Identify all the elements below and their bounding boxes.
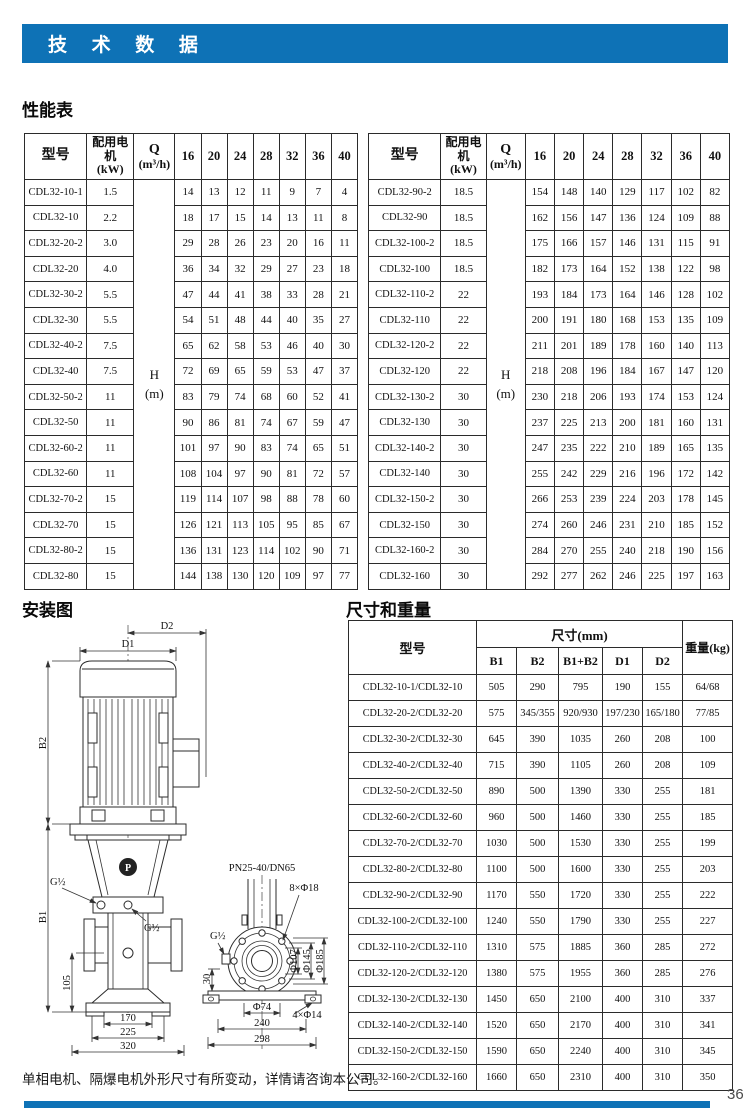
b1-cell: 1240: [477, 909, 517, 935]
motor-fan-cover: [80, 661, 176, 697]
d2-cell: 208: [643, 727, 683, 753]
head-value-cell: 216: [613, 461, 642, 487]
label-105: 105: [62, 975, 73, 991]
head-value-cell: 235: [555, 435, 584, 461]
head-value-cell: 29: [175, 231, 201, 257]
head-value-cell: 48: [227, 307, 253, 333]
perf-header-row: 型号 配用电机 (kW) Q (m³/h) 16 20 24 28 32 36 …: [25, 134, 358, 180]
head-unit-cell: H(m): [134, 180, 175, 590]
d2-cell: 310: [643, 987, 683, 1013]
head-value-cell: 113: [700, 333, 729, 359]
model-cell: CDL32-90-2/CDL32-90: [349, 883, 477, 909]
b1-cell: 1520: [477, 1013, 517, 1039]
perf-row: CDL32-140-230247235222210189165135: [369, 435, 730, 461]
dimensions-table: 型号 尺寸(mm) 重量(kg) B1 B2 B1+B2 D1 D2 CDL32…: [348, 620, 733, 1091]
b1b2-cell: 1105: [559, 753, 603, 779]
label-flange-spec: PN25-40/DN65: [229, 863, 296, 874]
motor-power-cell: 18.5: [441, 256, 486, 282]
head-value-cell: 224: [613, 487, 642, 513]
dimension-row: CDL32-150-2/CDL32-1501590650224040031034…: [349, 1039, 733, 1065]
model-cell: CDL32-120-2: [369, 333, 441, 359]
model-cell: CDL32-60-2: [25, 435, 87, 461]
perf-row: CDL32-100-218.517516615714613111591: [369, 231, 730, 257]
motor-power-cell: 4.0: [87, 256, 134, 282]
motor-power-cell: 30: [441, 487, 486, 513]
head-value-cell: 138: [642, 256, 671, 282]
b1-cell: 890: [477, 779, 517, 805]
d1-cell: 400: [603, 987, 643, 1013]
head-value-cell: 173: [584, 282, 613, 308]
motor-power-cell: 7.5: [87, 333, 134, 359]
head-value-cell: 74: [279, 435, 305, 461]
motor-power-cell: 30: [441, 538, 486, 564]
head-value-cell: 200: [613, 410, 642, 436]
motor-stool-flange: [70, 824, 186, 835]
b1-cell: 645: [477, 727, 517, 753]
head-value-cell: 131: [642, 231, 671, 257]
col-flow-16: 16: [525, 134, 554, 180]
head-value-cell: 193: [525, 282, 554, 308]
head-value-cell: 91: [700, 231, 729, 257]
head-value-cell: 231: [613, 512, 642, 538]
head-value-cell: 147: [584, 205, 613, 231]
head-value-cell: 260: [555, 512, 584, 538]
head-value-cell: 193: [613, 384, 642, 410]
head-value-cell: 97: [201, 435, 227, 461]
front-port: [123, 948, 133, 958]
perf-row: CDL32-15030274260246231210185152: [369, 512, 730, 538]
head-value-cell: 246: [584, 512, 613, 538]
weight-cell: 272: [683, 935, 733, 961]
model-cell: CDL32-140: [369, 461, 441, 487]
dimension-row: CDL32-120-2/CDL32-1201380575195536028527…: [349, 961, 733, 987]
head-value-cell: 98: [253, 487, 279, 513]
weight-cell: 185: [683, 805, 733, 831]
head-value-cell: 152: [700, 512, 729, 538]
head-value-cell: 270: [555, 538, 584, 564]
d2-cell: 255: [643, 779, 683, 805]
head-value-cell: 69: [201, 359, 227, 385]
d1-cell: 400: [603, 1065, 643, 1091]
col-size-group: 尺寸(mm): [477, 621, 683, 648]
head-value-cell: 154: [525, 180, 554, 206]
perf-row: CDL32-204.036343229272318: [25, 256, 358, 282]
head-value-cell: 146: [613, 231, 642, 257]
head-value-cell: 29: [253, 256, 279, 282]
head-value-cell: 85: [305, 512, 331, 538]
model-cell: CDL32-110: [369, 307, 441, 333]
suction-flange: [84, 919, 95, 971]
head-value-cell: 67: [331, 512, 357, 538]
d2-cell: 310: [643, 1065, 683, 1091]
motor-power-cell: 22: [441, 307, 486, 333]
head-value-cell: 135: [671, 307, 700, 333]
label-phi185: Φ185: [315, 949, 326, 972]
d1-cell: 400: [603, 1039, 643, 1065]
perf-row: CDL32-90-218.5H(m)15414814012911710282: [369, 180, 730, 206]
model-cell: CDL32-140-2: [369, 435, 441, 461]
head-value-cell: 37: [331, 359, 357, 385]
head-value-cell: 9: [279, 180, 305, 206]
head-value-cell: 284: [525, 538, 554, 564]
head-value-cell: 62: [201, 333, 227, 359]
model-cell: CDL32-30-2/CDL32-30: [349, 727, 477, 753]
weight-cell: 100: [683, 727, 733, 753]
motor-power-cell: 11: [87, 435, 134, 461]
label-298: 298: [254, 1034, 270, 1045]
dimension-row: CDL32-160-2/CDL32-1601660650231040031035…: [349, 1065, 733, 1091]
head-value-cell: 208: [555, 359, 584, 385]
head-value-cell: 196: [642, 461, 671, 487]
head-value-cell: 46: [279, 333, 305, 359]
perf-header-row: 型号 配用电机 (kW) Q (m³/h) 16 20 24 28 32 36 …: [369, 134, 730, 180]
label-d1: D1: [122, 639, 135, 650]
dimension-row: CDL32-130-2/CDL32-1301450650210040031033…: [349, 987, 733, 1013]
d1-cell: 330: [603, 805, 643, 831]
base-plate: [208, 991, 316, 1000]
head-value-cell: 102: [671, 180, 700, 206]
label-b1: B1: [38, 911, 49, 923]
d2-cell: 255: [643, 857, 683, 883]
dimension-row: CDL32-70-2/CDL32-7010305001530330255199: [349, 831, 733, 857]
col-flow-36: 36: [305, 134, 331, 180]
head-value-cell: 128: [671, 282, 700, 308]
head-value-cell: 59: [253, 359, 279, 385]
head-value-cell: 44: [253, 307, 279, 333]
motor-power-cell: 7.5: [87, 359, 134, 385]
head-value-cell: 114: [253, 538, 279, 564]
head-value-cell: 156: [700, 538, 729, 564]
head-value-cell: 145: [700, 487, 729, 513]
col-flow-28: 28: [613, 134, 642, 180]
b2-cell: 650: [517, 1065, 559, 1091]
dimension-row: CDL32-110-2/CDL32-1101310575188536028527…: [349, 935, 733, 961]
motor-power-cell: 22: [441, 333, 486, 359]
col-flow-24: 24: [227, 134, 253, 180]
model-cell: CDL32-20-2: [25, 231, 87, 257]
perf-row: CDL32-80-2151361311231141029071: [25, 538, 358, 564]
head-value-cell: 11: [253, 180, 279, 206]
model-cell: CDL32-70: [25, 512, 87, 538]
d2-cell: 155: [643, 675, 683, 701]
head-value-cell: 230: [525, 384, 554, 410]
weight-cell: 109: [683, 753, 733, 779]
model-cell: CDL32-40-2: [25, 333, 87, 359]
head-value-cell: 4: [331, 180, 357, 206]
head-value-cell: 105: [253, 512, 279, 538]
head-value-cell: 28: [305, 282, 331, 308]
head-value-cell: 191: [555, 307, 584, 333]
head-value-cell: 107: [227, 487, 253, 513]
head-value-cell: 131: [201, 538, 227, 564]
head-value-cell: 213: [584, 410, 613, 436]
head-value-cell: 101: [175, 435, 201, 461]
b1-cell: 1590: [477, 1039, 517, 1065]
model-cell: CDL32-30-2: [25, 282, 87, 308]
head-value-cell: 35: [305, 307, 331, 333]
head-value-cell: 229: [584, 461, 613, 487]
motor-power-cell: 11: [87, 461, 134, 487]
head-value-cell: 72: [175, 359, 201, 385]
bottom-accent-bar: [24, 1101, 710, 1108]
head-value-cell: 53: [279, 359, 305, 385]
d2-cell: 310: [643, 1013, 683, 1039]
head-value-cell: 129: [613, 180, 642, 206]
col-flow: Q (m³/h): [486, 134, 525, 180]
head-value-cell: 160: [671, 410, 700, 436]
head-value-cell: 90: [175, 410, 201, 436]
perf-row: CDL32-102.21817151413118: [25, 205, 358, 231]
motor-power-cell: 22: [441, 282, 486, 308]
dim-header-row-1: 型号 尺寸(mm) 重量(kg): [349, 621, 733, 648]
head-value-cell: 222: [584, 435, 613, 461]
head-value-cell: 74: [253, 410, 279, 436]
d2-cell: 165/180: [643, 701, 683, 727]
head-value-cell: 140: [584, 180, 613, 206]
head-value-cell: 65: [175, 333, 201, 359]
head-value-cell: 20: [279, 231, 305, 257]
motor-power-cell: 18.5: [441, 180, 486, 206]
model-cell: CDL32-100-2: [369, 231, 441, 257]
b2-cell: 550: [517, 883, 559, 909]
head-value-cell: 72: [305, 461, 331, 487]
catalog-page: 技 术 数 据 性能表 安装图 尺寸和重量 型号 配用电机 (kW) Q (m³…: [0, 0, 750, 1116]
model-cell: CDL32-80: [25, 563, 87, 589]
head-value-cell: 30: [331, 333, 357, 359]
b1b2-cell: 2310: [559, 1065, 603, 1091]
head-value-cell: 23: [253, 231, 279, 257]
label-30: 30: [202, 974, 213, 985]
head-value-cell: 11: [331, 231, 357, 257]
perf-row: CDL32-10-11.5H(m)14131211974: [25, 180, 358, 206]
model-cell: CDL32-80-2/CDL32-80: [349, 857, 477, 883]
head-value-cell: 165: [671, 435, 700, 461]
col-d1: D1: [603, 648, 643, 675]
dimension-row: CDL32-30-2/CDL32-306453901035260208100: [349, 727, 733, 753]
head-value-cell: 153: [671, 384, 700, 410]
flange-plan-view: PN25-40/DN65 8×Φ18 Φ107: [202, 863, 328, 1049]
weight-cell: 276: [683, 961, 733, 987]
head-value-cell: 164: [613, 282, 642, 308]
head-value-cell: 247: [525, 435, 554, 461]
head-value-cell: 17: [201, 205, 227, 231]
perf-row: CDL32-50-21183797468605241: [25, 384, 358, 410]
head-value-cell: 86: [201, 410, 227, 436]
discharge-flange: [171, 919, 182, 971]
weight-cell: 222: [683, 883, 733, 909]
b2-cell: 345/355: [517, 701, 559, 727]
head-value-cell: 184: [555, 282, 584, 308]
b1-cell: 575: [477, 701, 517, 727]
head-value-cell: 120: [253, 563, 279, 589]
head-value-cell: 240: [613, 538, 642, 564]
head-value-cell: 190: [671, 538, 700, 564]
perf-row: CDL32-120-222211201189178160140113: [369, 333, 730, 359]
head-value-cell: 218: [525, 359, 554, 385]
col-model: 型号: [349, 621, 477, 675]
head-value-cell: 119: [175, 487, 201, 513]
head-value-cell: 126: [175, 512, 201, 538]
head-value-cell: 184: [613, 359, 642, 385]
label-d2: D2: [161, 621, 174, 632]
head-value-cell: 78: [305, 487, 331, 513]
head-value-cell: 44: [201, 282, 227, 308]
d1-cell: 330: [603, 909, 643, 935]
head-value-cell: 274: [525, 512, 554, 538]
b1b2-cell: 795: [559, 675, 603, 701]
perf-row: CDL32-7015126121113105958567: [25, 512, 358, 538]
d1-cell: 330: [603, 779, 643, 805]
d2-cell: 285: [643, 935, 683, 961]
head-value-cell: 18: [175, 205, 201, 231]
b1b2-cell: 1035: [559, 727, 603, 753]
motor-power-cell: 11: [87, 410, 134, 436]
label-g-half-1: G½: [50, 877, 66, 888]
head-value-cell: 168: [613, 307, 642, 333]
weight-cell: 337: [683, 987, 733, 1013]
model-cell: CDL32-10: [25, 205, 87, 231]
col-weight: 重量(kg): [683, 621, 733, 675]
head-value-cell: 174: [642, 384, 671, 410]
motor-power-cell: 15: [87, 512, 134, 538]
d2-cell: 255: [643, 909, 683, 935]
head-value-cell: 181: [642, 410, 671, 436]
b2-cell: 500: [517, 805, 559, 831]
d1-cell: 330: [603, 831, 643, 857]
model-cell: CDL32-90-2: [369, 180, 441, 206]
b1-cell: 505: [477, 675, 517, 701]
head-value-cell: 196: [584, 359, 613, 385]
head-value-cell: 14: [253, 205, 279, 231]
col-flow-40: 40: [331, 134, 357, 180]
head-value-cell: 88: [700, 205, 729, 231]
d1-cell: 360: [603, 961, 643, 987]
head-value-cell: 27: [279, 256, 305, 282]
col-b1: B1: [477, 648, 517, 675]
label-b2: B2: [38, 737, 49, 749]
pump-base: [92, 989, 164, 1003]
head-value-cell: 27: [331, 307, 357, 333]
head-value-cell: 36: [175, 256, 201, 282]
head-value-cell: 218: [555, 384, 584, 410]
head-value-cell: 13: [201, 180, 227, 206]
motor-power-cell: 15: [87, 563, 134, 589]
head-value-cell: 114: [201, 487, 227, 513]
d1-cell: 400: [603, 1013, 643, 1039]
head-value-cell: 7: [305, 180, 331, 206]
footnote: 单相电机、隔爆电机外形尺寸有所变动，详情请咨询本公司。: [22, 1068, 387, 1088]
head-value-cell: 26: [227, 231, 253, 257]
model-cell: CDL32-110-2: [369, 282, 441, 308]
head-value-cell: 147: [671, 359, 700, 385]
col-motor-power: 配用电机 (kW): [441, 134, 486, 180]
perf-row: CDL32-9018.516215614713612410988: [369, 205, 730, 231]
head-value-cell: 189: [642, 435, 671, 461]
col-d2: D2: [643, 648, 683, 675]
head-value-cell: 79: [201, 384, 227, 410]
b1b2-cell: 1790: [559, 909, 603, 935]
head-value-cell: 266: [525, 487, 554, 513]
head-value-cell: 136: [175, 538, 201, 564]
col-flow-32: 32: [642, 134, 671, 180]
head-value-cell: 65: [305, 435, 331, 461]
head-value-cell: 162: [525, 205, 554, 231]
dimension-row: CDL32-80-2/CDL32-8011005001600330255203: [349, 857, 733, 883]
weight-cell: 203: [683, 857, 733, 883]
head-value-cell: 90: [253, 461, 279, 487]
perf-row: CDL32-20-23.029282623201611: [25, 231, 358, 257]
model-cell: CDL32-100: [369, 256, 441, 282]
head-value-cell: 53: [253, 333, 279, 359]
head-value-cell: 82: [700, 180, 729, 206]
model-cell: CDL32-70-2/CDL32-70: [349, 831, 477, 857]
d1-cell: 197/230: [603, 701, 643, 727]
head-value-cell: 81: [279, 461, 305, 487]
motor-power-cell: 22: [441, 359, 486, 385]
b2-cell: 500: [517, 779, 559, 805]
b1-cell: 1380: [477, 961, 517, 987]
head-value-cell: 160: [642, 333, 671, 359]
d1-cell: 260: [603, 727, 643, 753]
d1-cell: 330: [603, 883, 643, 909]
model-cell: CDL32-130: [369, 410, 441, 436]
head-value-cell: 95: [279, 512, 305, 538]
perf-row: CDL32-30-25.547444138332821: [25, 282, 358, 308]
motor-power-cell: 30: [441, 435, 486, 461]
terminal-box: [173, 739, 199, 787]
b2-cell: 650: [517, 1013, 559, 1039]
head-value-cell: 156: [555, 205, 584, 231]
dimension-row: CDL32-20-2/CDL32-20575345/355920/930197/…: [349, 701, 733, 727]
model-cell: CDL32-40: [25, 359, 87, 385]
b1b2-cell: 2170: [559, 1013, 603, 1039]
pump-logo-letter: P: [125, 863, 131, 874]
motor-power-cell: 18.5: [441, 205, 486, 231]
head-value-cell: 115: [671, 231, 700, 257]
b2-cell: 550: [517, 909, 559, 935]
dimension-row: CDL32-10-1/CDL32-1050529079519015564/68: [349, 675, 733, 701]
head-value-cell: 13: [279, 205, 305, 231]
dimension-row: CDL32-100-2/CDL32-1001240550179033025522…: [349, 909, 733, 935]
head-value-cell: 182: [525, 256, 554, 282]
head-value-cell: 67: [279, 410, 305, 436]
b2-cell: 650: [517, 1039, 559, 1065]
head-value-cell: 197: [671, 563, 700, 589]
col-model: 型号: [25, 134, 87, 180]
col-flow-24: 24: [584, 134, 613, 180]
head-value-cell: 81: [227, 410, 253, 436]
head-value-cell: 88: [279, 487, 305, 513]
head-value-cell: 117: [642, 180, 671, 206]
b1-cell: 960: [477, 805, 517, 831]
weight-cell: 77/85: [683, 701, 733, 727]
page-number: 36: [727, 1086, 744, 1103]
head-value-cell: 51: [331, 435, 357, 461]
head-value-cell: 130: [227, 563, 253, 589]
perf-row: CDL32-407.572696559534737: [25, 359, 358, 385]
head-value-cell: 102: [700, 282, 729, 308]
label-g-half-3: G½: [210, 931, 226, 942]
head-value-cell: 189: [584, 333, 613, 359]
perf-row: CDL32-10018.518217316415213812298: [369, 256, 730, 282]
motor-power-cell: 30: [441, 563, 486, 589]
head-value-cell: 47: [175, 282, 201, 308]
section-title-bar: 技 术 数 据: [22, 24, 728, 63]
head-value-cell: 185: [671, 512, 700, 538]
b1b2-cell: 1390: [559, 779, 603, 805]
col-b2: B2: [517, 648, 559, 675]
head-value-cell: 242: [555, 461, 584, 487]
